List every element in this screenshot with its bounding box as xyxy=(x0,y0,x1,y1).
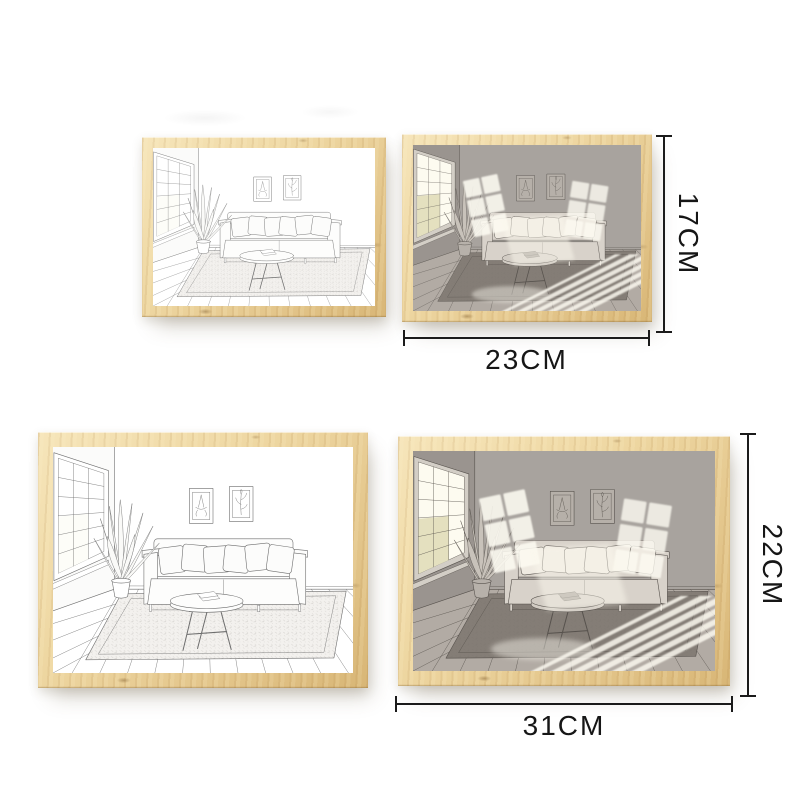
height-dimension-small: 17CM xyxy=(663,135,665,333)
frame-large-light-art xyxy=(398,436,730,686)
dimension-line-horizontal xyxy=(403,337,650,339)
living-room-light-shadow-art xyxy=(413,145,641,311)
frame-small-light-art xyxy=(402,134,652,322)
frame-small-line-art xyxy=(142,137,386,317)
dimension-line-vertical xyxy=(663,135,665,333)
width-dimension-small: 23CM xyxy=(403,337,650,339)
dimension-line-vertical xyxy=(747,433,749,697)
living-room-line-art xyxy=(53,447,353,673)
dimension-label-width-small: 23CM xyxy=(403,344,650,376)
width-dimension-large: 31CM xyxy=(395,703,733,705)
product-size-diagram: 17CM 23CM 22CM 31CM xyxy=(0,0,800,800)
dimension-label-width-large: 31CM xyxy=(395,710,733,742)
height-dimension-large: 22CM xyxy=(747,433,749,697)
dimension-label-height-small: 17CM xyxy=(672,193,704,276)
living-room-line-art xyxy=(153,148,375,306)
dimension-line-horizontal xyxy=(395,703,733,705)
frame-large-line-art xyxy=(38,432,368,688)
dimension-label-height-large: 22CM xyxy=(756,524,788,607)
living-room-light-shadow-art xyxy=(413,451,715,671)
